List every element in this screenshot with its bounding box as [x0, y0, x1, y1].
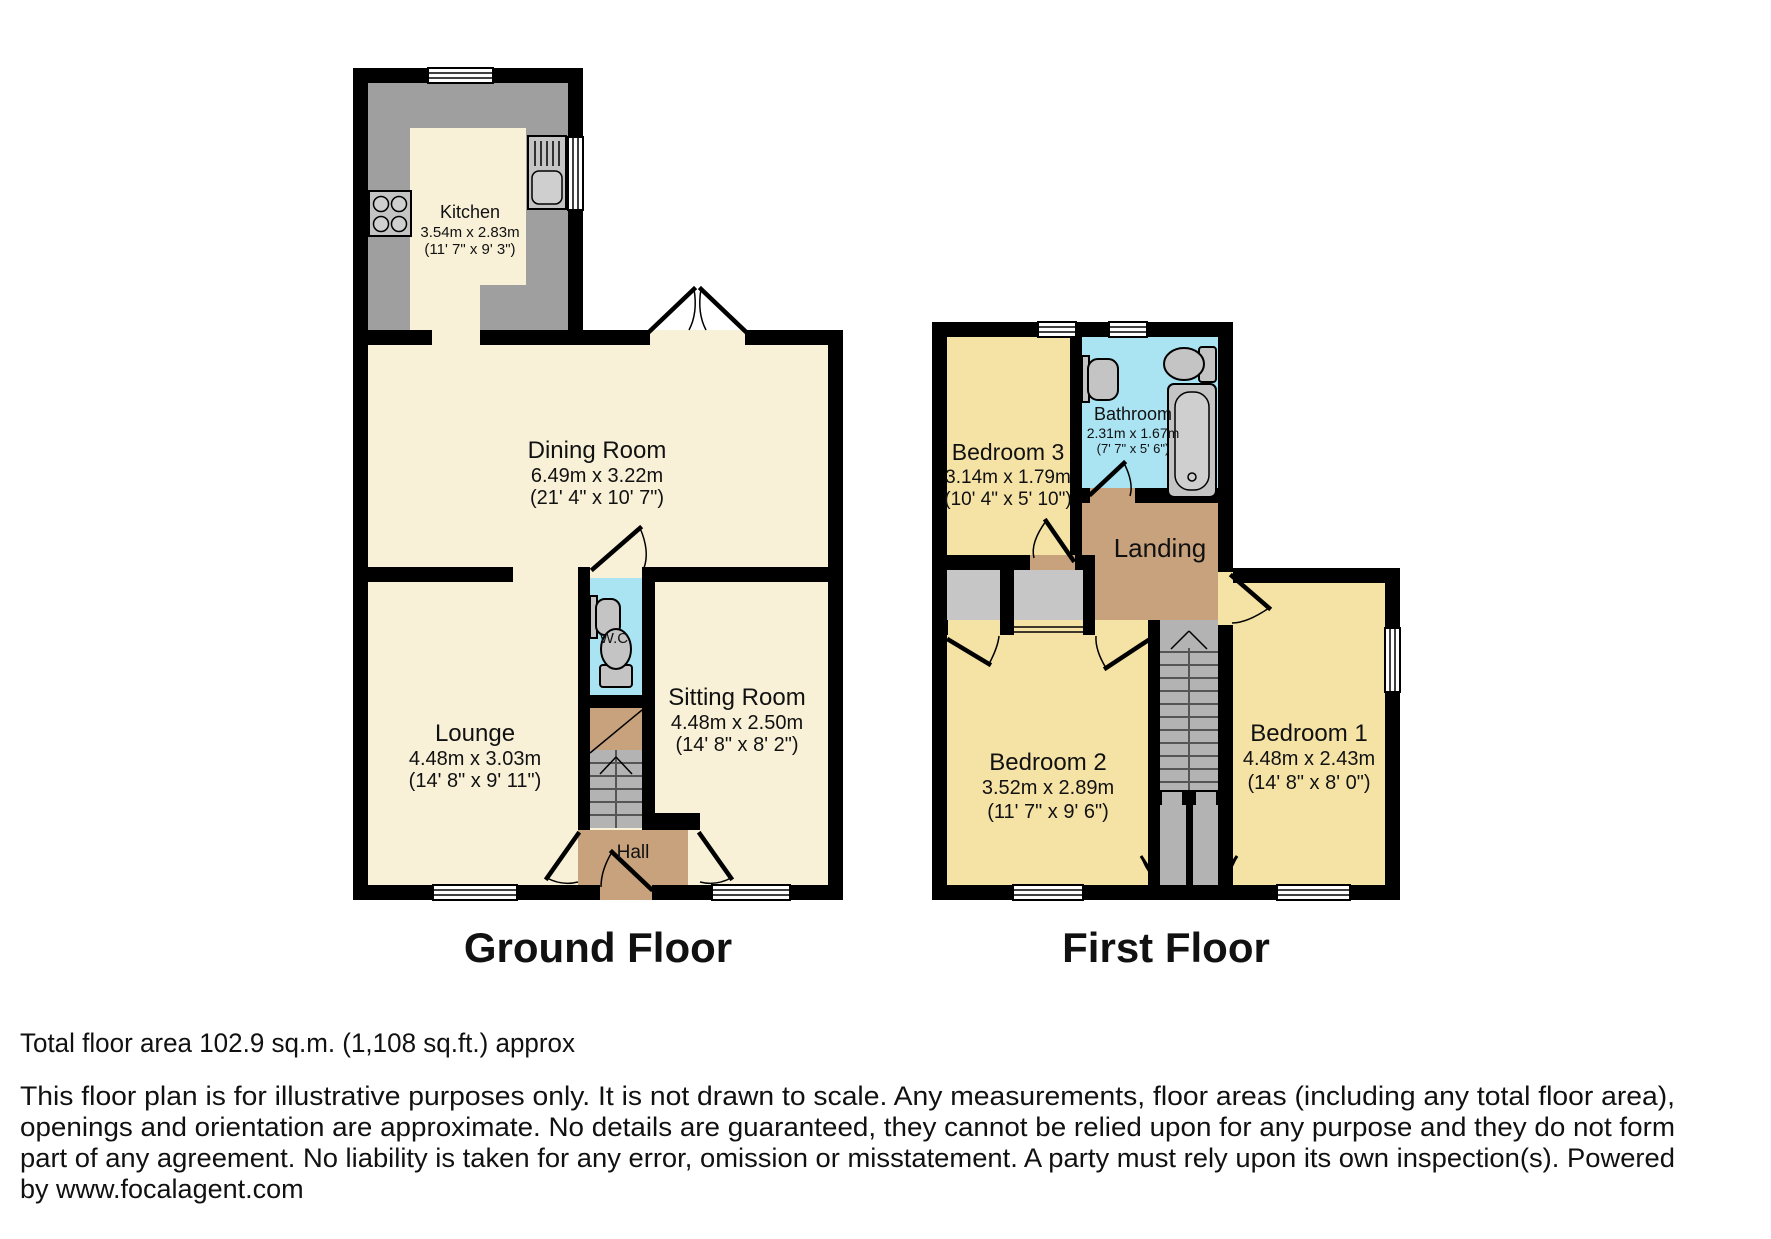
cupboard-opening	[1162, 792, 1182, 805]
sitting-label: Sitting Room	[668, 684, 805, 711]
ground-floor-plan: Kitchen 3.54m x 2.83m (11' 7" x 9' 3") D…	[353, 68, 843, 971]
french-doors	[650, 289, 745, 331]
bedroom2-imperial: (11' 7" x 9' 6")	[987, 801, 1109, 823]
bathroom-metric: 2.31m x 1.67m	[1087, 425, 1180, 441]
cupboard-floor	[1193, 805, 1218, 885]
dining-metric: 6.49m x 3.22m	[531, 465, 663, 487]
kitchen-doorway	[432, 330, 480, 345]
wc-label: W.C.	[600, 630, 633, 647]
window	[1013, 885, 1083, 900]
stair-landing	[590, 708, 642, 750]
sitting-metric: 4.48m x 2.50m	[671, 712, 803, 734]
dining-label: Dining Room	[528, 437, 667, 464]
closet-floor	[947, 570, 1000, 620]
disclaimer-line: This floor plan is for illustrative purp…	[20, 1081, 1675, 1111]
bedroom1-label: Bedroom 1	[1250, 720, 1367, 747]
wall	[353, 330, 432, 345]
lounge-metric: 4.48m x 3.03m	[409, 748, 541, 770]
landing-floor	[1095, 568, 1148, 620]
disclaimer-line: by www.focalagent.com	[20, 1174, 304, 1204]
closet-floor	[1014, 570, 1083, 620]
cupboard-floor	[1160, 805, 1186, 885]
window	[712, 885, 790, 900]
kitchen-sink-icon	[528, 136, 566, 209]
kitchen-imperial: (11' 7" x 9' 3")	[424, 241, 515, 258]
kitchen-metric: 3.54m x 2.83m	[420, 224, 519, 241]
wall	[353, 567, 513, 582]
cupboard-opening	[1196, 792, 1216, 805]
ground-floor-title: Ground Floor	[464, 924, 732, 971]
window	[1038, 322, 1076, 337]
lounge-label: Lounge	[435, 720, 515, 747]
window	[428, 68, 493, 83]
bedroom2-doorway	[1095, 620, 1148, 635]
bedroom3-doorway	[1030, 555, 1075, 570]
hob-icon	[369, 191, 411, 236]
wall	[590, 695, 642, 708]
window	[1277, 885, 1350, 900]
wall	[1083, 555, 1095, 635]
kitchen-counter	[480, 285, 568, 330]
wc-door-opening	[590, 567, 642, 578]
wall	[642, 567, 828, 582]
bedroom2-label: Bedroom 2	[989, 749, 1106, 776]
wall	[642, 567, 655, 830]
lounge-imperial: (14' 8" x 9' 11")	[409, 770, 542, 792]
first-floor-title: First Floor	[1062, 924, 1270, 971]
dining-imperial: (21' 4" x 10' 7")	[530, 487, 664, 509]
disclaimer-line: part of any agreement. No liability is t…	[20, 1143, 1675, 1173]
floorplan-page: Kitchen 3.54m x 2.83m (11' 7" x 9' 3") D…	[0, 0, 1771, 1239]
disclaimer-line: openings and orientation are approximate…	[20, 1112, 1675, 1142]
total-floor-area: Total floor area 102.9 sq.m. (1,108 sq.f…	[20, 1028, 575, 1058]
bathroom-imperial: (7' 7" x 5' 6")	[1097, 441, 1170, 456]
footer: Total floor area 102.9 sq.m. (1,108 sq.f…	[20, 1028, 1675, 1204]
floorplan-canvas: Kitchen 3.54m x 2.83m (11' 7" x 9' 3") D…	[0, 0, 1771, 1239]
bedroom3-metric: 3.14m x 1.79m	[945, 467, 1071, 488]
wall	[1000, 555, 1014, 635]
window	[1385, 628, 1400, 692]
french-door-opening	[650, 330, 745, 345]
window	[1109, 322, 1147, 337]
bathroom-label: Bathroom	[1094, 404, 1172, 424]
hall-label: Hall	[617, 842, 650, 863]
bedroom3-imperial: (10' 4" x 5' 10")	[944, 489, 1071, 510]
wall	[1070, 322, 1082, 558]
kitchen-counter	[410, 83, 568, 128]
sitting-imperial: (14' 8" x 8' 2")	[676, 734, 799, 756]
bedroom2-metric: 3.52m x 2.89m	[982, 777, 1114, 799]
bathroom-toilet-icon	[1164, 347, 1216, 382]
wall	[480, 330, 583, 345]
bathroom-basin-icon	[1082, 356, 1118, 402]
bedroom3-label: Bedroom 3	[952, 439, 1065, 465]
closet1-doorway	[948, 620, 1000, 635]
wall	[578, 567, 590, 830]
landing-label: Landing	[1114, 533, 1207, 563]
bedroom1-metric: 4.48m x 2.43m	[1243, 748, 1375, 770]
first-floor-plan: Bedroom 3 3.14m x 1.79m (10' 4" x 5' 10"…	[932, 322, 1400, 971]
window	[433, 885, 517, 900]
wall	[642, 813, 700, 830]
front-door-opening	[600, 885, 652, 900]
kitchen-label: Kitchen	[440, 202, 500, 222]
wall	[1148, 620, 1160, 805]
window	[568, 137, 583, 210]
wall	[1186, 798, 1193, 885]
bedroom1-doorway	[1218, 572, 1233, 625]
bedroom1-imperial: (14' 8" x 8' 0")	[1248, 772, 1371, 794]
